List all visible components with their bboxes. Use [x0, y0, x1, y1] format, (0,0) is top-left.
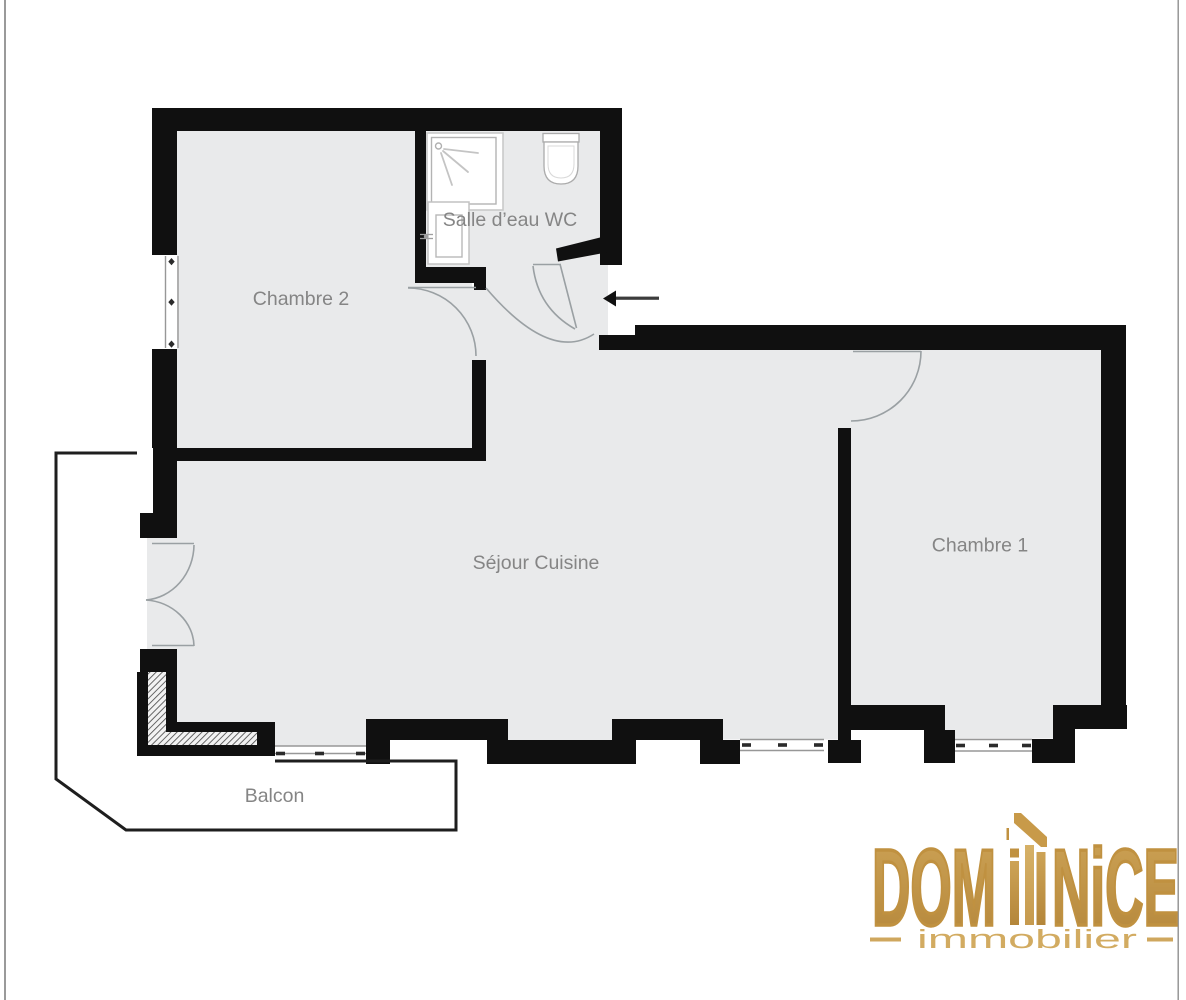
svg-text:Chambre 2: Chambre 2	[253, 288, 349, 310]
svg-text:immobilier: immobilier	[917, 926, 1138, 954]
svg-text:Séjour Cuisine: Séjour Cuisine	[473, 552, 600, 574]
svg-text:Salle d’eau WC: Salle d’eau WC	[443, 209, 577, 231]
svg-text:Chambre 1: Chambre 1	[932, 535, 1028, 557]
svg-text:Balcon: Balcon	[245, 785, 305, 807]
